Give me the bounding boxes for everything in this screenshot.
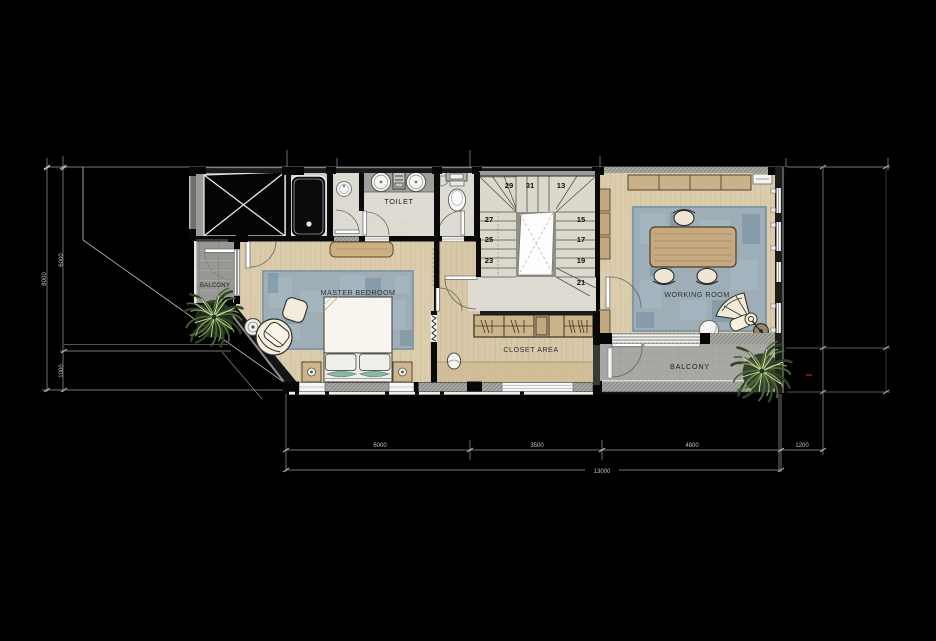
svg-text:27: 27	[485, 215, 493, 224]
svg-text:13: 13	[557, 181, 565, 190]
svg-text:1000: 1000	[59, 364, 65, 378]
svg-text:13000: 13000	[594, 469, 611, 475]
svg-text:19: 19	[577, 256, 585, 265]
svg-text:21: 21	[577, 278, 586, 287]
svg-text:CLOSET AREA: CLOSET AREA	[503, 345, 558, 354]
svg-text:MASTER BEDROOM: MASTER BEDROOM	[321, 288, 396, 297]
svg-text:3500: 3500	[530, 443, 544, 449]
svg-text:23: 23	[485, 256, 493, 265]
svg-text:4800: 4800	[685, 443, 699, 449]
svg-text:BALCONY: BALCONY	[670, 362, 710, 371]
svg-text:8000: 8000	[42, 272, 48, 286]
svg-text:15: 15	[577, 215, 586, 224]
svg-text:1200: 1200	[795, 443, 809, 449]
svg-text:17: 17	[577, 235, 585, 244]
svg-text:6000: 6000	[59, 253, 65, 267]
svg-text:31: 31	[526, 181, 535, 190]
svg-text:29: 29	[505, 181, 513, 190]
svg-text:BALCONY: BALCONY	[200, 283, 230, 289]
svg-text:6000: 6000	[373, 443, 387, 449]
svg-text:25: 25	[485, 235, 494, 244]
svg-text:TOILET: TOILET	[384, 197, 413, 206]
svg-text:WORKING ROOM: WORKING ROOM	[664, 290, 730, 299]
